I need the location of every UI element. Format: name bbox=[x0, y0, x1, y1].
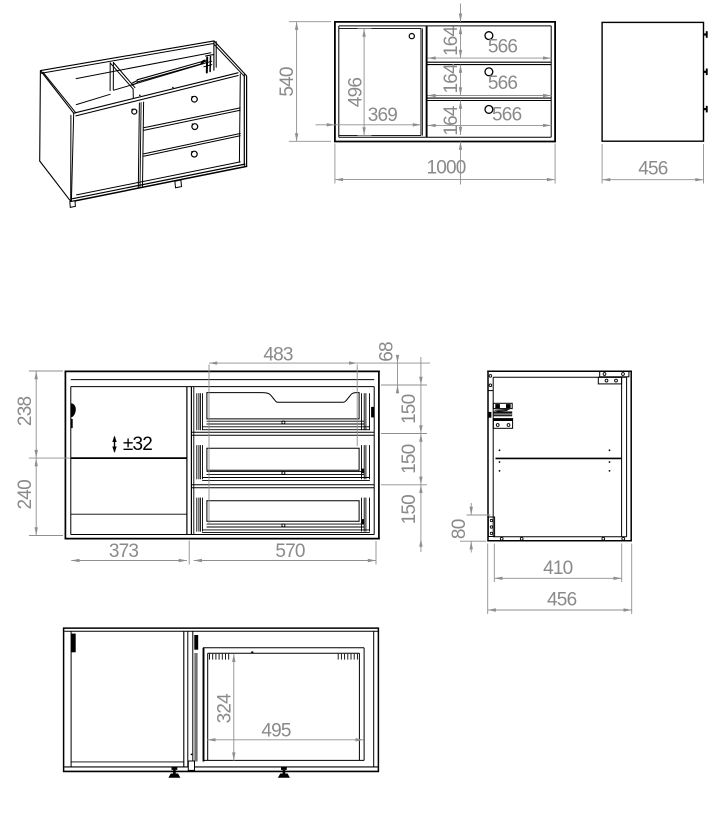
svg-text:324: 324 bbox=[215, 693, 236, 724]
svg-text:68: 68 bbox=[377, 342, 398, 362]
svg-text:496: 496 bbox=[345, 78, 366, 108]
svg-text:164: 164 bbox=[441, 63, 462, 94]
svg-text:80: 80 bbox=[449, 519, 470, 539]
svg-text:150: 150 bbox=[399, 444, 420, 474]
svg-text:483: 483 bbox=[263, 345, 293, 366]
svg-text:164: 164 bbox=[441, 105, 462, 136]
svg-text:410: 410 bbox=[543, 558, 573, 579]
svg-text:369: 369 bbox=[368, 105, 398, 126]
svg-text:±32: ±32 bbox=[123, 434, 152, 455]
svg-text:495: 495 bbox=[261, 721, 291, 742]
svg-text:566: 566 bbox=[488, 73, 518, 94]
svg-text:1000: 1000 bbox=[426, 158, 465, 179]
svg-text:566: 566 bbox=[492, 105, 522, 126]
svg-text:570: 570 bbox=[275, 541, 305, 562]
svg-text:456: 456 bbox=[547, 590, 577, 611]
svg-text:238: 238 bbox=[15, 397, 36, 427]
svg-text:150: 150 bbox=[399, 495, 420, 525]
svg-text:540: 540 bbox=[277, 67, 298, 97]
svg-text:164: 164 bbox=[441, 25, 462, 56]
svg-text:456: 456 bbox=[638, 159, 668, 180]
svg-text:150: 150 bbox=[399, 394, 420, 424]
svg-text:240: 240 bbox=[15, 480, 36, 510]
svg-text:566: 566 bbox=[488, 37, 518, 58]
svg-text:373: 373 bbox=[109, 541, 139, 562]
